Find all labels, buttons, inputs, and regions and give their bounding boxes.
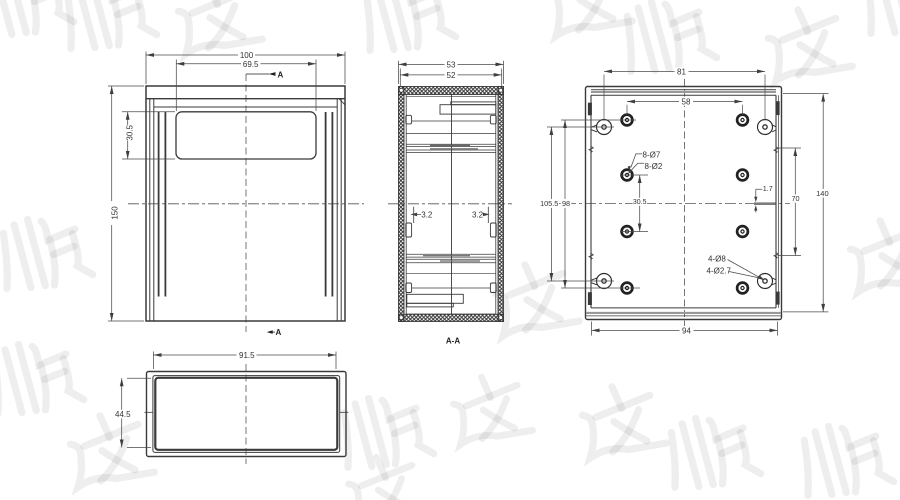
svg-text:A: A [276,328,282,337]
svg-text:94: 94 [682,326,691,335]
svg-text:4-Ø8: 4-Ø8 [708,255,726,264]
svg-text:100: 100 [240,51,254,60]
svg-text:A: A [278,71,284,80]
svg-text:91.5: 91.5 [239,351,255,360]
svg-text:44.5: 44.5 [115,410,131,419]
svg-text:105.5: 105.5 [540,199,558,208]
svg-text:53: 53 [447,61,456,70]
svg-text:30.5: 30.5 [125,124,134,140]
svg-text:3.2: 3.2 [421,210,433,219]
svg-text:3.2: 3.2 [472,210,484,219]
svg-text:8-Ø2: 8-Ø2 [645,162,663,171]
svg-text:140: 140 [816,189,829,198]
svg-text:8-Ø7: 8-Ø7 [643,151,661,160]
svg-text:98: 98 [562,199,570,208]
svg-text:A-A: A-A [446,337,460,346]
svg-text:1.7: 1.7 [763,184,773,193]
svg-text:58: 58 [682,98,691,107]
svg-text:30.5: 30.5 [633,199,647,206]
svg-text:69.5: 69.5 [243,60,259,69]
svg-text:70: 70 [791,194,799,203]
svg-text:150: 150 [110,206,119,220]
svg-text:81: 81 [677,67,686,76]
svg-text:52: 52 [447,71,456,80]
svg-text:4-Ø2.7: 4-Ø2.7 [707,267,732,276]
